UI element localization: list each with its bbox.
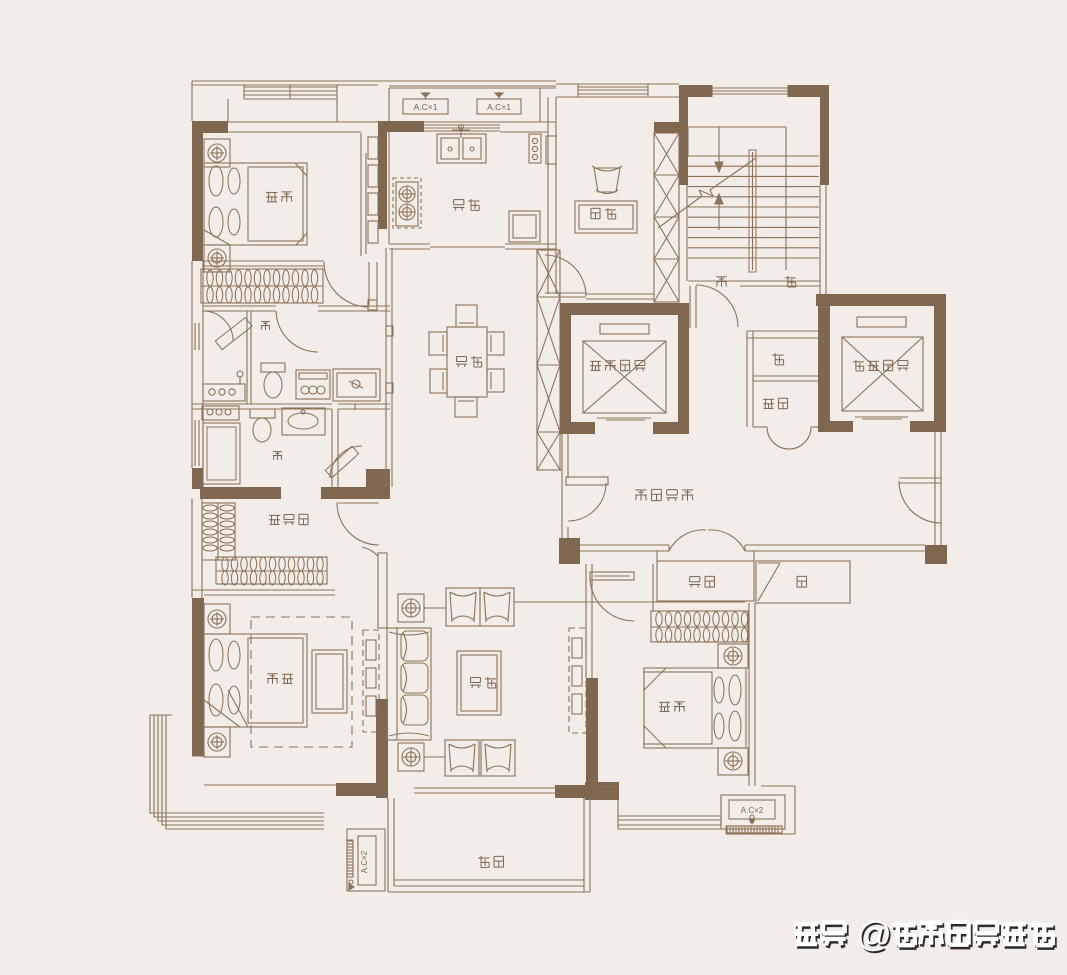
svg-text:A.C×2: A.C×2 [360, 850, 369, 873]
svg-text:A.C×2: A.C×2 [741, 806, 764, 815]
svg-text:@: @ [856, 915, 892, 954]
svg-text:A.C×1: A.C×1 [487, 102, 511, 112]
svg-text:A.C×1: A.C×1 [414, 102, 438, 112]
